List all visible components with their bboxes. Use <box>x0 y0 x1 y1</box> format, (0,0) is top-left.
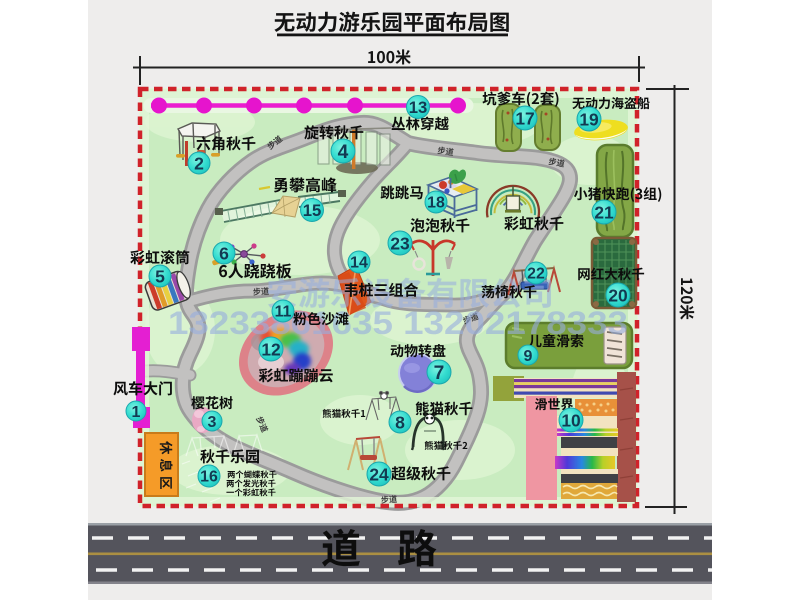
svg-text:17: 17 <box>515 108 534 128</box>
svg-text:13: 13 <box>409 98 428 117</box>
svg-text:3: 3 <box>208 414 217 431</box>
svg-text:12: 12 <box>261 339 280 359</box>
svg-text:7: 7 <box>434 363 445 384</box>
svg-text:6: 6 <box>219 243 229 263</box>
svg-text:18: 18 <box>427 195 445 212</box>
svg-text:24: 24 <box>369 464 389 484</box>
svg-text:1: 1 <box>132 404 141 421</box>
svg-text:9: 9 <box>524 348 533 365</box>
svg-text:8: 8 <box>395 412 405 432</box>
svg-text:21: 21 <box>594 202 614 222</box>
svg-text:23: 23 <box>390 233 410 253</box>
svg-text:5: 5 <box>155 266 165 286</box>
svg-text:16: 16 <box>200 469 218 486</box>
svg-text:22: 22 <box>527 266 545 283</box>
svg-text:4: 4 <box>338 142 349 163</box>
svg-text:19: 19 <box>579 109 599 129</box>
svg-text:2: 2 <box>194 153 204 173</box>
svg-text:14: 14 <box>350 255 368 272</box>
svg-text:10: 10 <box>561 410 580 430</box>
svg-text:15: 15 <box>303 201 322 220</box>
svg-text:20: 20 <box>608 285 627 305</box>
svg-text:11: 11 <box>275 304 292 321</box>
